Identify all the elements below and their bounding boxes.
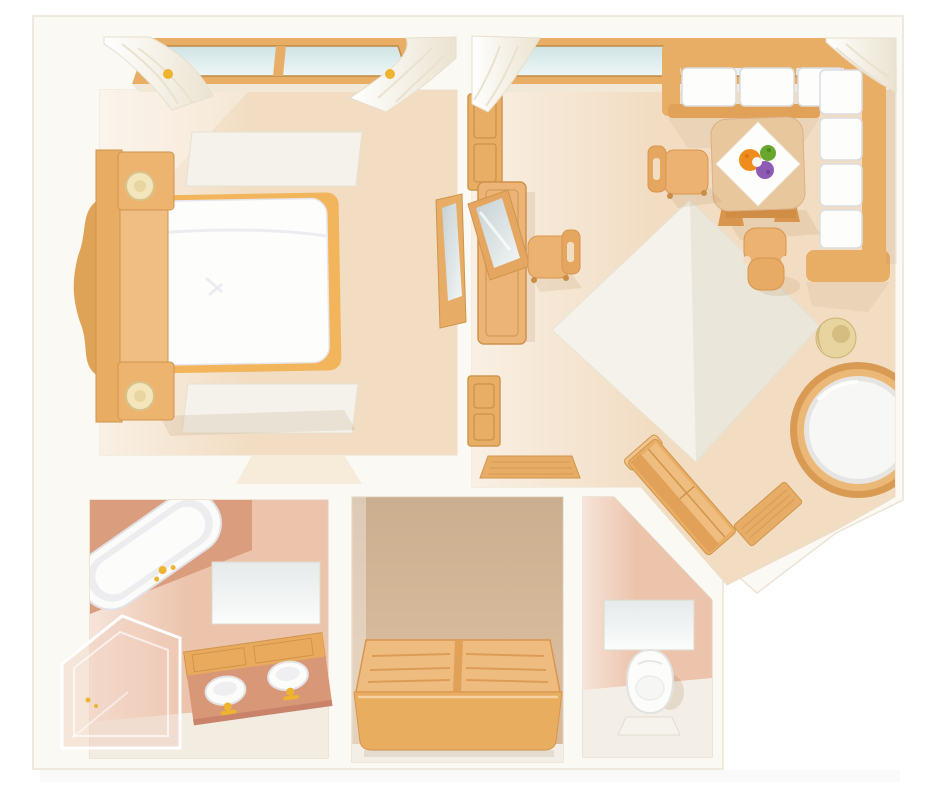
bath-mat xyxy=(618,717,680,735)
curtain-tie xyxy=(163,69,173,79)
dresser-front xyxy=(354,692,562,750)
doormat xyxy=(480,456,580,478)
room-bathroom: bathroom xyxy=(62,480,333,758)
plan-drop-shadow xyxy=(40,770,900,782)
straw-hat xyxy=(816,318,856,358)
bedroom-leaning-mirror xyxy=(436,194,466,328)
low-dresser xyxy=(354,640,562,757)
sofa-cushion xyxy=(820,164,862,206)
floor-plan-svg: bedroom xyxy=(0,0,935,800)
bedroom-rug-top xyxy=(186,132,362,186)
sofa-corner-cushion xyxy=(820,70,862,114)
curtain-tie xyxy=(385,69,395,79)
sofa-cushion xyxy=(820,210,862,248)
room-bedroom: bedroom xyxy=(74,37,466,484)
bathroom-mirror xyxy=(212,562,320,624)
sofa-cushion xyxy=(682,68,736,106)
living-door-lower xyxy=(468,376,500,446)
sofa-cushion xyxy=(740,68,794,106)
floor-plan-canvas: bedroom xyxy=(0,0,935,800)
shower-drain xyxy=(86,698,91,703)
sofa-cushion xyxy=(820,118,862,160)
wc-mirror xyxy=(604,600,694,650)
room-closet: closet-room xyxy=(352,497,563,762)
sofa-arm-end xyxy=(806,250,890,282)
bedroom-doorway xyxy=(236,455,362,484)
side-chair-b xyxy=(528,230,582,292)
